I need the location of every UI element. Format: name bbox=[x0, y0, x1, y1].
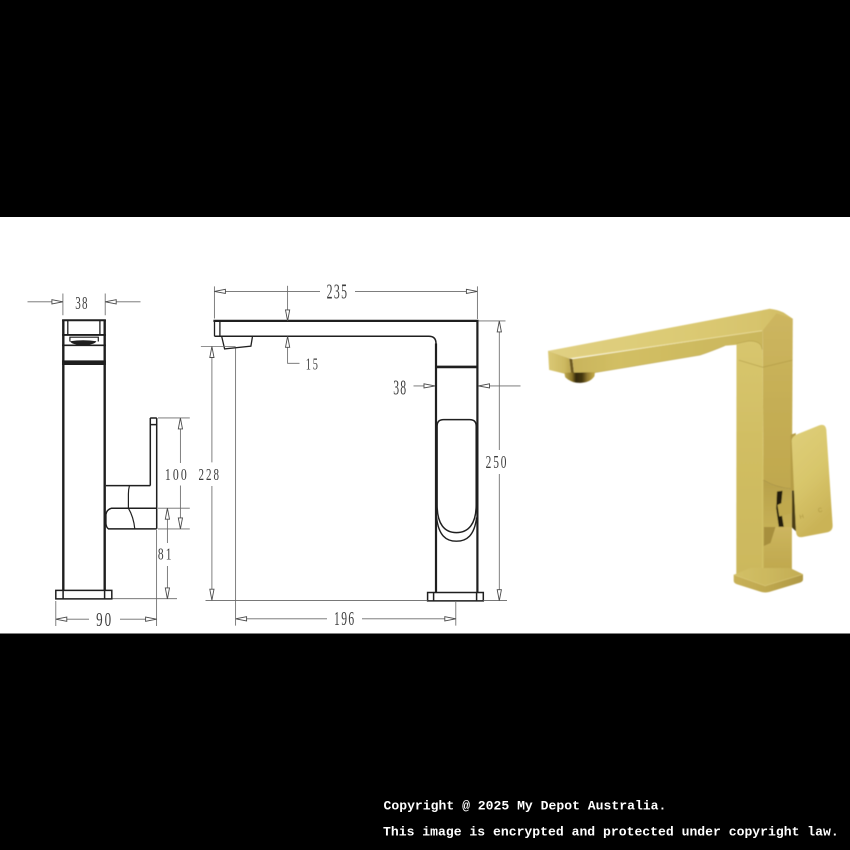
svg-text:81: 81 bbox=[158, 546, 174, 565]
svg-text:100: 100 bbox=[165, 466, 189, 484]
svg-text:15: 15 bbox=[306, 355, 320, 373]
svg-text:250: 250 bbox=[486, 454, 509, 473]
svg-text:235: 235 bbox=[327, 280, 349, 303]
svg-text:Copyright @ 2025 My Depot Aust: Copyright @ 2025 My Depot Australia. bbox=[384, 799, 667, 814]
svg-text:90: 90 bbox=[96, 608, 113, 631]
svg-text:228: 228 bbox=[199, 467, 221, 485]
svg-text:This image is encrypted and pr: This image is encrypted and protected un… bbox=[383, 825, 839, 840]
svg-text:196: 196 bbox=[334, 609, 356, 630]
svg-text:38: 38 bbox=[75, 295, 89, 314]
svg-text:38: 38 bbox=[393, 376, 407, 399]
